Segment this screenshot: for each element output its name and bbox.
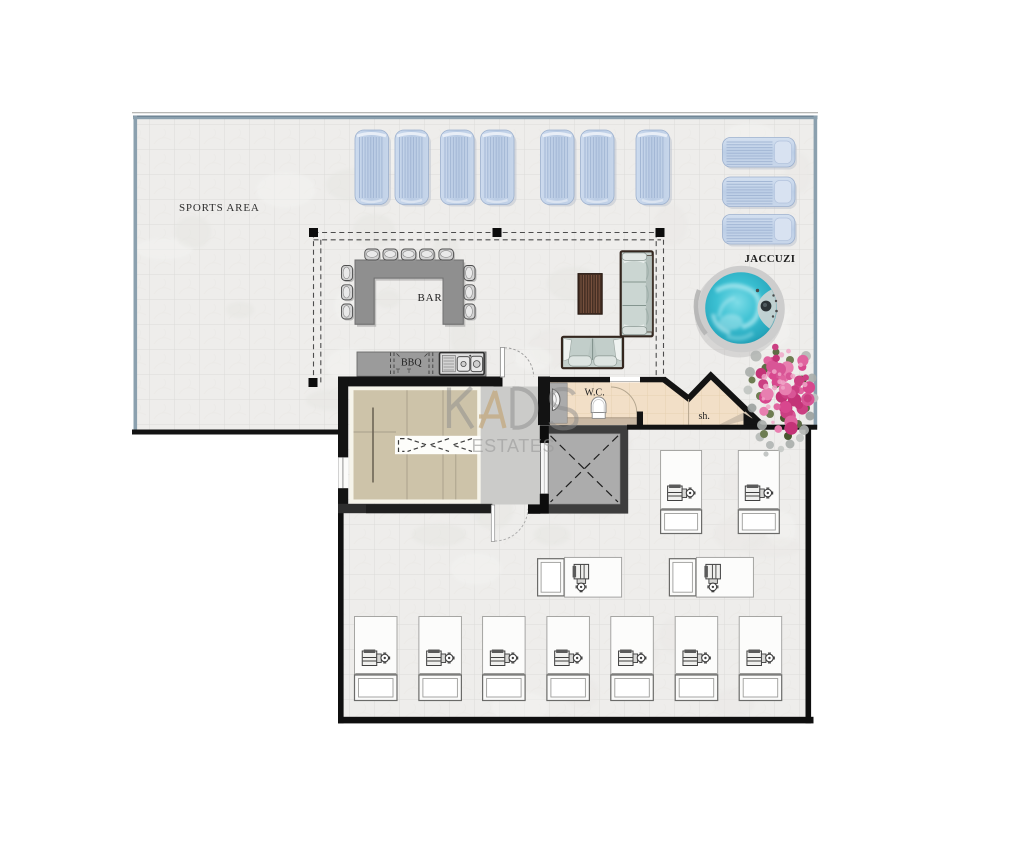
svg-text:ESTATES: ESTATES bbox=[472, 436, 556, 456]
svg-text:BBQ: BBQ bbox=[401, 357, 422, 368]
svg-text:BAR: BAR bbox=[418, 292, 443, 304]
svg-text:SPORTS AREA: SPORTS AREA bbox=[179, 202, 260, 214]
svg-text:JACCUZI: JACCUZI bbox=[745, 253, 796, 265]
svg-text:sh.: sh. bbox=[699, 411, 710, 422]
svg-text:W.C.: W.C. bbox=[585, 388, 605, 399]
